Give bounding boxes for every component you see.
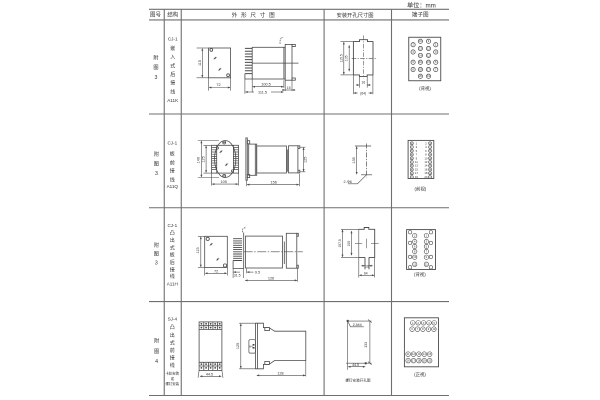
svg-text:72: 72 bbox=[214, 269, 218, 273]
svg-text:(正视): (正视) bbox=[414, 371, 426, 378]
svg-text:20: 20 bbox=[424, 175, 428, 179]
svg-text:128: 128 bbox=[277, 371, 283, 375]
svg-text:126: 126 bbox=[268, 277, 274, 281]
svg-text:CJ-1: CJ-1 bbox=[168, 36, 178, 41]
svg-text:附: 附 bbox=[153, 53, 158, 61]
svg-text:44.5: 44.5 bbox=[206, 372, 213, 376]
svg-text:凸: 凸 bbox=[170, 230, 175, 236]
svg-text:凸: 凸 bbox=[170, 325, 175, 331]
svg-text:115.5: 115.5 bbox=[339, 54, 343, 62]
svg-text:149: 149 bbox=[197, 157, 201, 163]
svg-text:111.5: 111.5 bbox=[258, 90, 267, 94]
svg-text:3: 3 bbox=[155, 260, 158, 266]
svg-text:2-Φ6: 2-Φ6 bbox=[344, 180, 352, 184]
svg-text:前: 前 bbox=[170, 159, 175, 166]
svg-text:2-M4: 2-M4 bbox=[353, 322, 363, 327]
svg-text:SJ-4: SJ-4 bbox=[168, 317, 178, 322]
svg-text:图: 图 bbox=[153, 64, 158, 71]
svg-text:4: 4 bbox=[155, 359, 158, 365]
svg-text:(背视): (背视) bbox=[414, 271, 426, 278]
svg-text:安装开孔尺寸图: 安装开孔尺寸图 bbox=[336, 11, 373, 19]
svg-text:105: 105 bbox=[347, 241, 351, 247]
svg-text:135: 135 bbox=[352, 157, 356, 163]
svg-text:出: 出 bbox=[170, 237, 175, 244]
svg-text:64: 64 bbox=[364, 271, 368, 275]
svg-text:螺钉安装开孔图: 螺钉安装开孔图 bbox=[345, 377, 371, 382]
svg-text:单位：mm: 单位：mm bbox=[407, 2, 436, 10]
svg-text:前: 前 bbox=[170, 347, 175, 354]
svg-text:105: 105 bbox=[221, 180, 227, 184]
svg-text:A11Q: A11Q bbox=[167, 184, 179, 189]
svg-text:图: 图 bbox=[154, 251, 159, 258]
svg-text:115: 115 bbox=[196, 247, 200, 253]
svg-text:接: 接 bbox=[170, 168, 175, 175]
svg-text:端子图: 端子图 bbox=[412, 11, 429, 19]
svg-text:15: 15 bbox=[287, 86, 291, 90]
svg-text:后: 后 bbox=[170, 71, 175, 78]
svg-text:式: 式 bbox=[170, 339, 175, 346]
svg-text:图号: 图号 bbox=[150, 11, 162, 19]
svg-text:线: 线 bbox=[170, 362, 175, 369]
svg-text:线: 线 bbox=[170, 273, 175, 280]
svg-text:螺钉安装: 螺钉安装 bbox=[166, 381, 180, 386]
svg-text:125: 125 bbox=[202, 156, 206, 162]
svg-text:外形尺寸图: 外形尺寸图 bbox=[232, 11, 279, 19]
svg-text:156: 156 bbox=[271, 181, 277, 185]
svg-text:31.5: 31.5 bbox=[234, 274, 241, 278]
svg-text:入: 入 bbox=[170, 55, 175, 61]
svg-text:CJ-1: CJ-1 bbox=[167, 140, 177, 145]
svg-text:线: 线 bbox=[170, 88, 175, 95]
svg-text:3: 3 bbox=[155, 171, 158, 177]
svg-text:接: 接 bbox=[170, 354, 175, 361]
svg-text:出: 出 bbox=[170, 332, 175, 339]
svg-text:CJ-1: CJ-1 bbox=[167, 223, 177, 228]
svg-text:105: 105 bbox=[345, 55, 349, 61]
svg-text:图: 图 bbox=[154, 348, 159, 355]
svg-text:72: 72 bbox=[216, 83, 220, 87]
svg-text:附: 附 bbox=[154, 241, 159, 249]
svg-text:附: 附 bbox=[154, 337, 159, 345]
svg-text:图: 图 bbox=[154, 160, 159, 167]
svg-text:(前视): (前视) bbox=[415, 186, 427, 193]
svg-text:式: 式 bbox=[170, 62, 175, 69]
svg-text:(背视): (背视) bbox=[419, 85, 431, 92]
svg-text:卡轨安装: 卡轨安装 bbox=[166, 371, 180, 376]
svg-text:107.5: 107.5 bbox=[338, 239, 342, 247]
svg-text:9.5: 9.5 bbox=[255, 270, 260, 274]
svg-text:100.5: 100.5 bbox=[261, 82, 271, 86]
svg-text:125: 125 bbox=[236, 343, 240, 349]
svg-text:A11K: A11K bbox=[167, 98, 179, 103]
svg-text:嵌: 嵌 bbox=[170, 45, 175, 52]
svg-text:A11H: A11H bbox=[167, 281, 178, 286]
svg-text:133: 133 bbox=[364, 342, 368, 348]
svg-text:接: 接 bbox=[170, 80, 175, 87]
svg-text:接: 接 bbox=[170, 266, 175, 273]
svg-text:3: 3 bbox=[155, 75, 158, 81]
svg-text:结构: 结构 bbox=[167, 11, 179, 19]
svg-text:附: 附 bbox=[154, 150, 159, 158]
svg-text:线: 线 bbox=[170, 176, 175, 183]
svg-text:125: 125 bbox=[303, 157, 307, 163]
svg-text:板: 板 bbox=[170, 251, 175, 258]
svg-text:115: 115 bbox=[198, 60, 202, 66]
svg-text:16: 16 bbox=[362, 80, 366, 84]
svg-text:(64): (64) bbox=[360, 92, 366, 96]
svg-text:16: 16 bbox=[365, 265, 369, 269]
svg-text:式: 式 bbox=[170, 244, 175, 251]
svg-text:19: 19 bbox=[415, 175, 419, 179]
svg-text:后: 后 bbox=[170, 259, 175, 266]
svg-text:44.5: 44.5 bbox=[352, 363, 359, 367]
svg-text:板: 板 bbox=[170, 151, 175, 158]
